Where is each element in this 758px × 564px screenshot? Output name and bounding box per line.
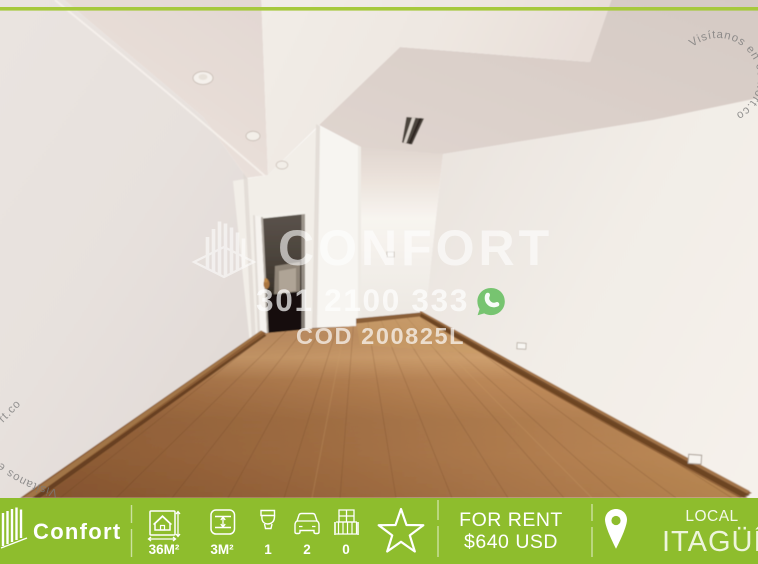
svg-text:Confort: Confort bbox=[33, 519, 122, 544]
svg-text:COD 200825L: COD 200825L bbox=[296, 323, 465, 349]
svg-text:ITAGÜÍ: ITAGÜÍ bbox=[662, 525, 758, 558]
svg-text:301 2100 333: 301 2100 333 bbox=[256, 282, 469, 318]
svg-text:$640 USD: $640 USD bbox=[464, 531, 558, 553]
svg-text:2: 2 bbox=[303, 542, 311, 557]
svg-text:0: 0 bbox=[342, 542, 350, 557]
svg-text:3M²: 3M² bbox=[210, 542, 234, 557]
svg-text:1: 1 bbox=[264, 542, 272, 557]
svg-text:CONFORT: CONFORT bbox=[278, 220, 553, 276]
svg-text:36M²: 36M² bbox=[149, 542, 180, 557]
svg-text:LOCAL: LOCAL bbox=[685, 508, 738, 525]
svg-text:FOR RENT: FOR RENT bbox=[459, 509, 563, 531]
